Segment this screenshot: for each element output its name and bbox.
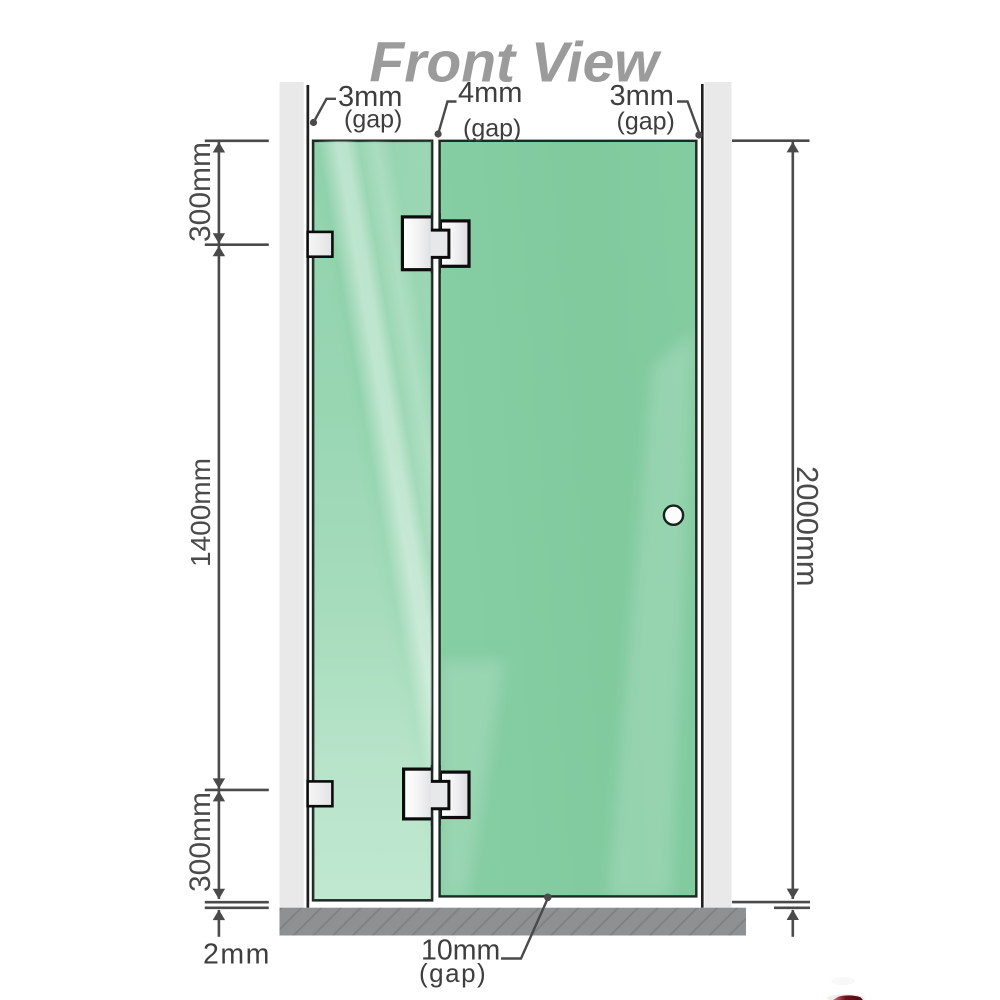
svg-text:(gap): (gap) bbox=[617, 108, 675, 136]
svg-text:2000mm: 2000mm bbox=[790, 466, 825, 587]
svg-text:(gap): (gap) bbox=[419, 958, 487, 988]
svg-text:300mm: 300mm bbox=[184, 142, 217, 242]
svg-text:2mm: 2mm bbox=[203, 939, 271, 971]
svg-text:1400mm: 1400mm bbox=[185, 458, 216, 567]
svg-text:300mm: 300mm bbox=[184, 792, 217, 892]
svg-text:4mm: 4mm bbox=[458, 77, 522, 109]
svg-text:(gap): (gap) bbox=[344, 106, 402, 134]
svg-text:(gap): (gap) bbox=[463, 115, 521, 143]
